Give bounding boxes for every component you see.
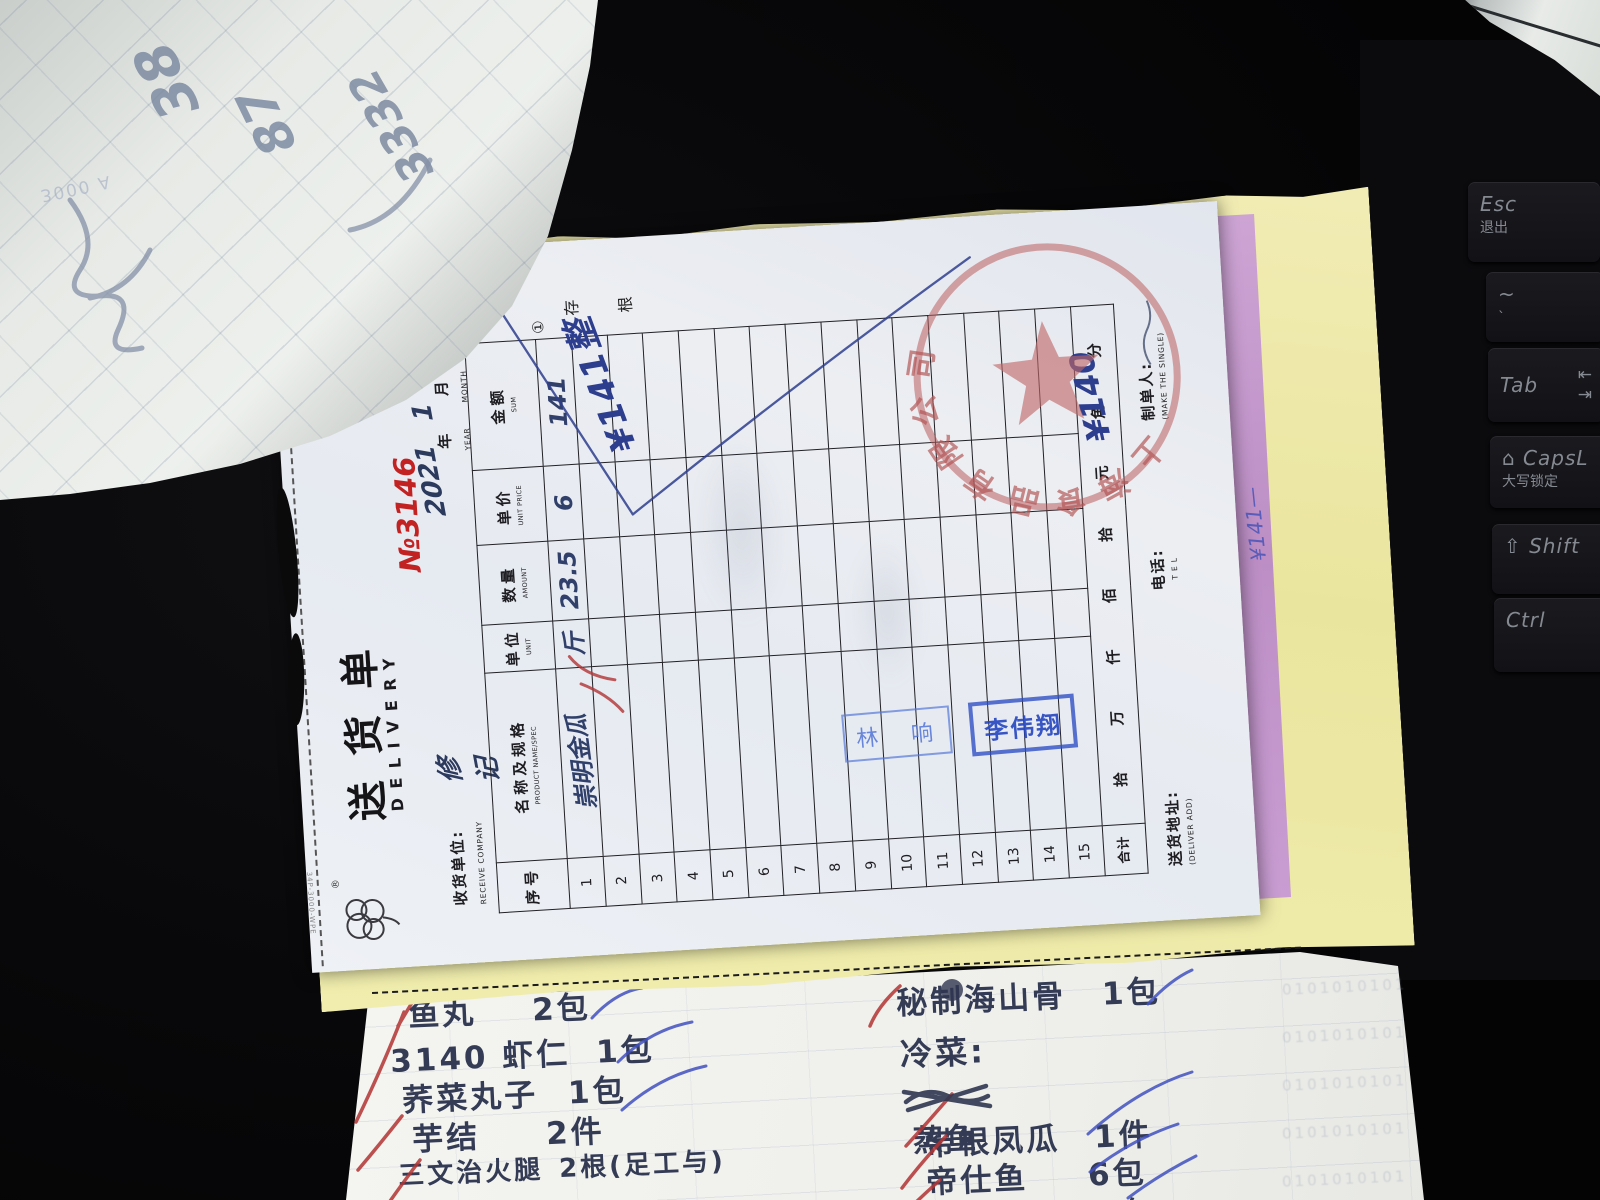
scribble-strikeout	[904, 1086, 990, 1110]
seal-star	[981, 313, 1103, 439]
name-stamp-li-weixiang: 李伟翔	[968, 693, 1078, 756]
name-stamp-lin-xiang: 林 响	[841, 705, 953, 762]
photo-scene: Esc退出~`Tab⇤ ⇥⌂ CapsL大写锁定⇧ ShiftCtrl 鱼丸2包…	[0, 0, 1600, 1200]
ink-blob	[941, 979, 963, 1001]
red-check-mark	[569, 653, 622, 714]
red-company-seal: 上海食品有限公司	[868, 198, 1226, 556]
